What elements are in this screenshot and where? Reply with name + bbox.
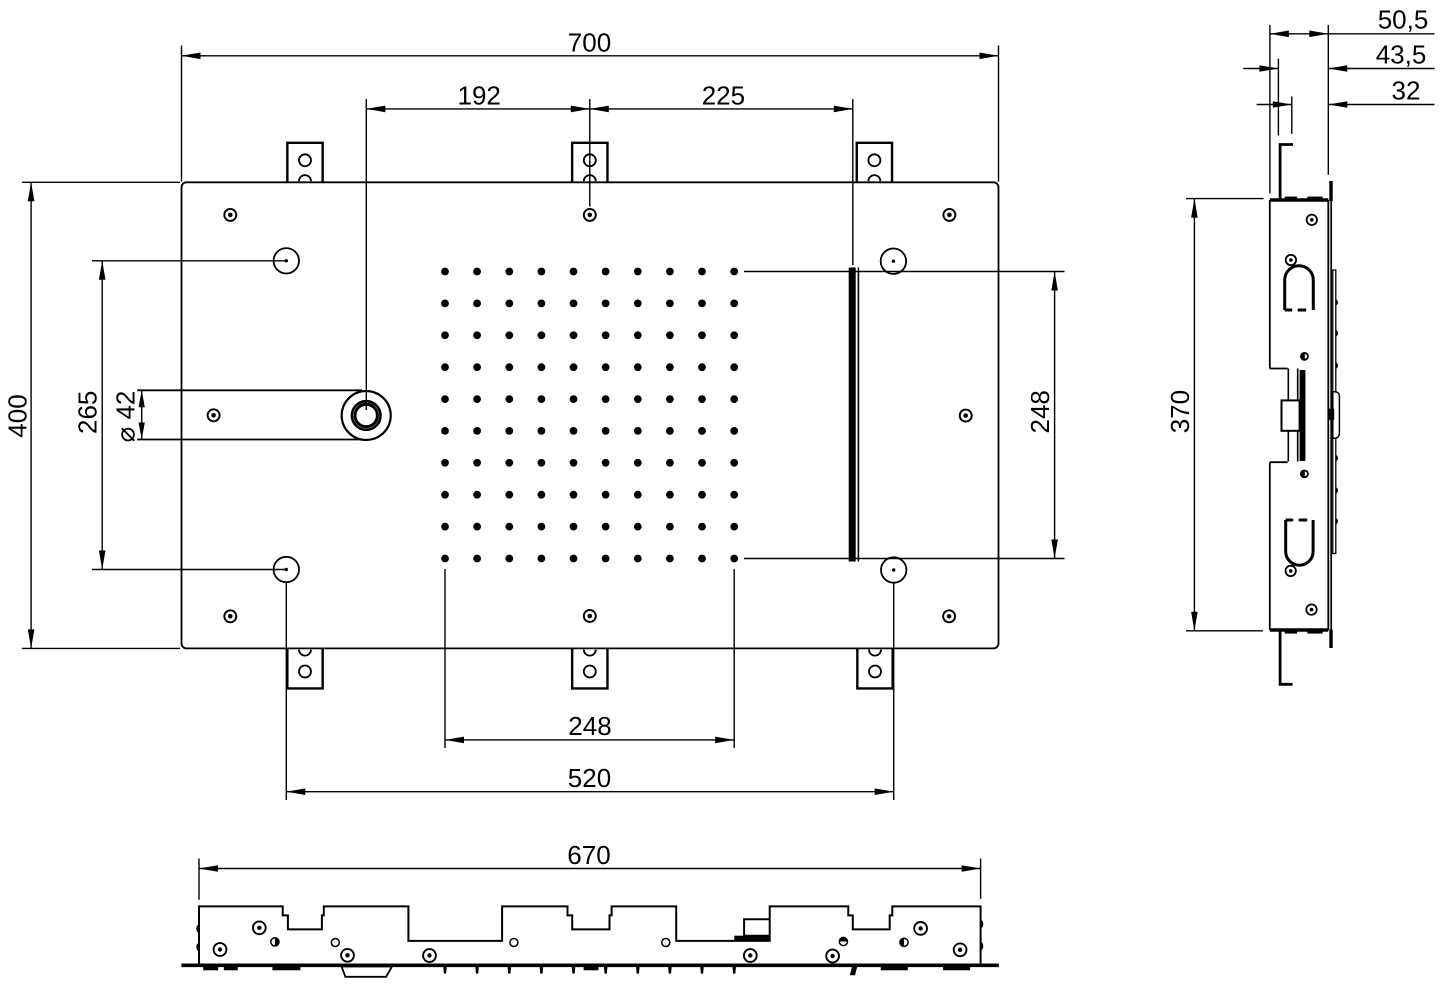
svg-text:700: 700 — [568, 28, 611, 58]
svg-text:265: 265 — [73, 391, 103, 434]
svg-text:248: 248 — [1025, 390, 1055, 433]
svg-text:⌀ 42: ⌀ 42 — [111, 391, 141, 443]
svg-text:520: 520 — [568, 763, 611, 793]
svg-text:50,5: 50,5 — [1378, 5, 1429, 35]
svg-text:192: 192 — [458, 81, 501, 111]
svg-text:670: 670 — [567, 840, 610, 870]
svg-text:370: 370 — [1165, 390, 1195, 433]
svg-text:248: 248 — [568, 711, 611, 741]
svg-text:43,5: 43,5 — [1376, 40, 1427, 70]
svg-text:32: 32 — [1392, 76, 1421, 106]
svg-text:225: 225 — [702, 81, 745, 111]
svg-text:400: 400 — [3, 394, 33, 437]
